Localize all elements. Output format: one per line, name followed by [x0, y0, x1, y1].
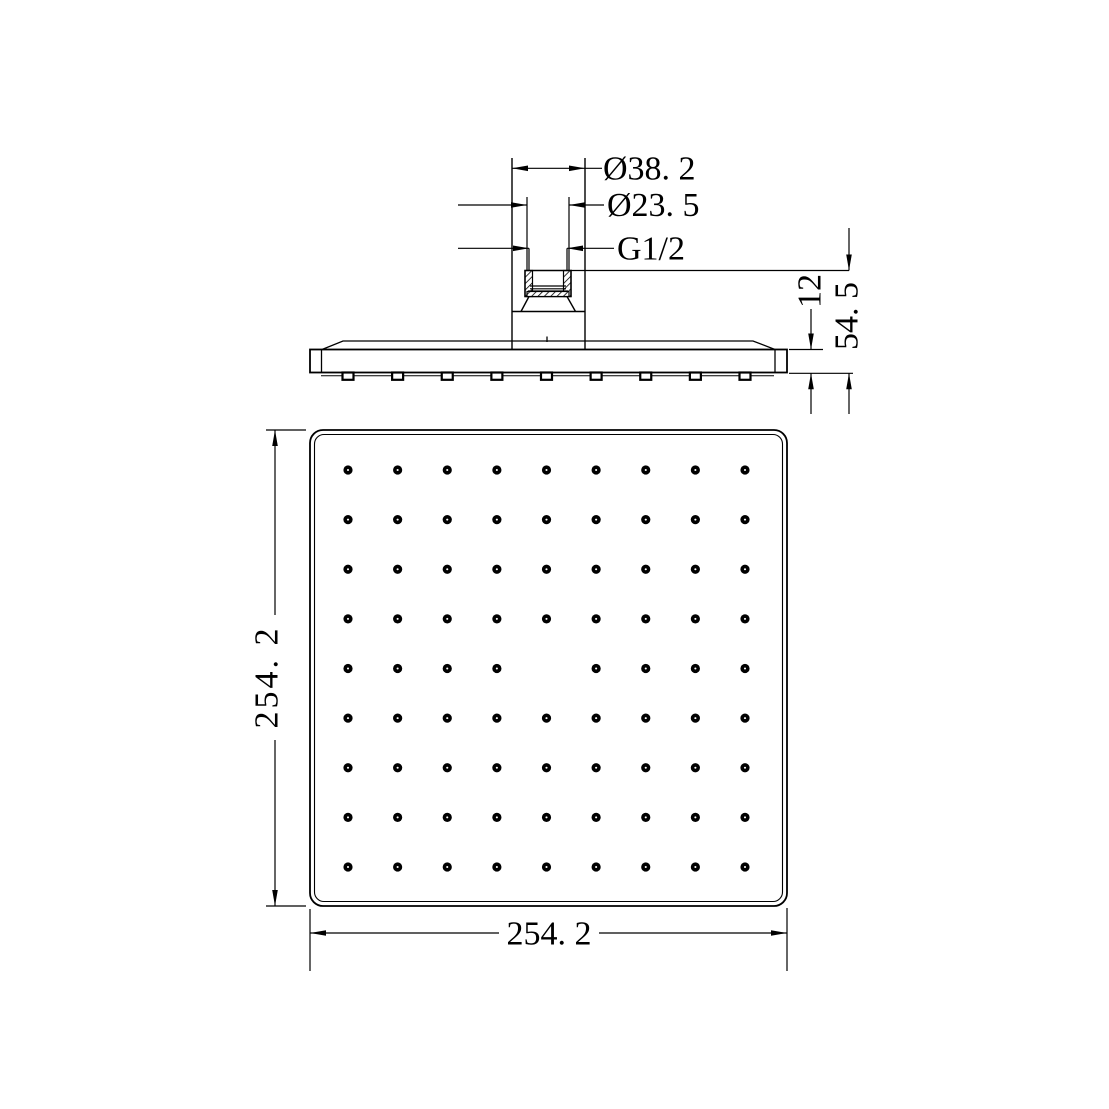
nozzle-pinhole [545, 767, 547, 769]
nozzle-pinhole [744, 519, 746, 521]
nozzle-pinhole [446, 519, 448, 521]
nozzle-pinhole [347, 667, 349, 669]
nozzle-pinhole [496, 816, 498, 818]
nozzle-pinhole [645, 568, 647, 570]
nozzle-pinhole [694, 816, 696, 818]
nozzle-pinhole [595, 866, 597, 868]
nozzle-pinhole [595, 618, 597, 620]
nozzle-pinhole [446, 767, 448, 769]
nozzle-pinhole [744, 816, 746, 818]
nozzle-pinhole [744, 469, 746, 471]
plan-view [310, 430, 787, 906]
nozzle-pinhole [397, 618, 399, 620]
nozzle-pinhole [347, 767, 349, 769]
seal-band-hatch [527, 292, 569, 297]
dim-label-head-thickness: 12 [792, 274, 829, 308]
nozzle-stub [541, 373, 552, 380]
nozzle-pinhole [347, 568, 349, 570]
nozzle-stub [343, 373, 354, 380]
nozzle-pinhole [545, 816, 547, 818]
nozzle-pinhole [496, 568, 498, 570]
nozzle-stub [442, 373, 453, 380]
dim-label-face-width: 254. 2 [507, 916, 592, 953]
nozzle-pinhole [347, 866, 349, 868]
nozzle-pinhole [397, 816, 399, 818]
dim-label-dia-thread: Ø23. 5 [607, 187, 700, 224]
nozzle-pinhole [595, 519, 597, 521]
nozzle-pinhole [446, 667, 448, 669]
nozzle-pinhole [694, 866, 696, 868]
nozzle-pinhole [694, 519, 696, 521]
nozzle-pinhole [595, 767, 597, 769]
nozzle-pinhole [397, 667, 399, 669]
nozzle-pinhole [397, 519, 399, 521]
nozzle-stub [740, 373, 751, 380]
nozzle-pinhole [545, 618, 547, 620]
dim-label-face-height: 254. 2 [249, 626, 286, 729]
nozzle-stub [690, 373, 701, 380]
nozzle-pinhole [645, 816, 647, 818]
nozzle-pinhole [645, 866, 647, 868]
nozzle-pinhole [347, 469, 349, 471]
head-slab [310, 350, 787, 373]
drawing-canvas: Ø38. 2 Ø23. 5 G1/2 [0, 0, 1109, 1109]
dim-label-overall-height: 54. 5 [829, 282, 866, 350]
nozzle-pinhole [347, 816, 349, 818]
nozzle-stub [392, 373, 403, 380]
nozzle-pinhole [744, 767, 746, 769]
nozzle-pinhole [595, 568, 597, 570]
nozzle-pinhole [496, 618, 498, 620]
nozzle-pinhole [694, 767, 696, 769]
nozzle-pinhole [744, 568, 746, 570]
face-outer-outline [310, 430, 787, 906]
nozzle-pinhole [645, 717, 647, 719]
nozzle-pinhole [694, 568, 696, 570]
nozzle-pinhole [645, 767, 647, 769]
nozzle-pinhole [645, 618, 647, 620]
nozzle-pinhole [446, 568, 448, 570]
nozzle-pinhole [744, 866, 746, 868]
nozzle-pinhole [545, 717, 547, 719]
nozzle-pinhole [595, 667, 597, 669]
nozzle-pinhole [347, 618, 349, 620]
nozzle-pinhole [496, 469, 498, 471]
nozzle-pinhole [545, 568, 547, 570]
nozzle-stub [491, 373, 502, 380]
nozzle-pinhole [545, 469, 547, 471]
nozzle-stub [591, 373, 602, 380]
nozzle-pinhole [347, 717, 349, 719]
nozzle-pinhole [397, 866, 399, 868]
nozzle-pinhole [446, 469, 448, 471]
nozzle-pinhole [595, 717, 597, 719]
nozzle-pinhole [496, 767, 498, 769]
nozzle-pinhole [446, 816, 448, 818]
nozzle-stubs [343, 373, 751, 380]
dim-label-thread-size: G1/2 [617, 230, 685, 267]
nozzle-pinhole [545, 519, 547, 521]
nozzle-pinhole [645, 519, 647, 521]
nozzle-pinhole [744, 667, 746, 669]
nozzle-pinhole [694, 469, 696, 471]
nozzle-pinhole [397, 717, 399, 719]
nozzle-pinhole [645, 469, 647, 471]
nozzle-pinhole [645, 667, 647, 669]
nozzle-pinhole [744, 618, 746, 620]
nozzle-pinhole [496, 667, 498, 669]
nozzle-pinhole [694, 667, 696, 669]
nozzle-pinhole [446, 618, 448, 620]
nozzle-pinhole [744, 717, 746, 719]
dim-label-dia-outer: Ø38. 2 [603, 151, 696, 188]
nozzle-stub [640, 373, 651, 380]
nozzle-pinhole [694, 717, 696, 719]
nozzle-pinhole [446, 717, 448, 719]
nozzle-pinhole [446, 866, 448, 868]
nozzle-pinhole [496, 866, 498, 868]
nozzle-pinhole [595, 469, 597, 471]
nozzle-pinhole [496, 717, 498, 719]
nozzle-pinhole [545, 866, 547, 868]
nozzle-pinhole [694, 618, 696, 620]
nozzle-pinhole [397, 469, 399, 471]
nozzle-pinhole [347, 519, 349, 521]
nozzle-pinhole [397, 568, 399, 570]
nozzle-pinhole [595, 816, 597, 818]
nozzle-pinhole [397, 767, 399, 769]
nozzle-pinhole [496, 519, 498, 521]
technical-drawing: Ø38. 2 Ø23. 5 G1/2 [0, 0, 1109, 1109]
